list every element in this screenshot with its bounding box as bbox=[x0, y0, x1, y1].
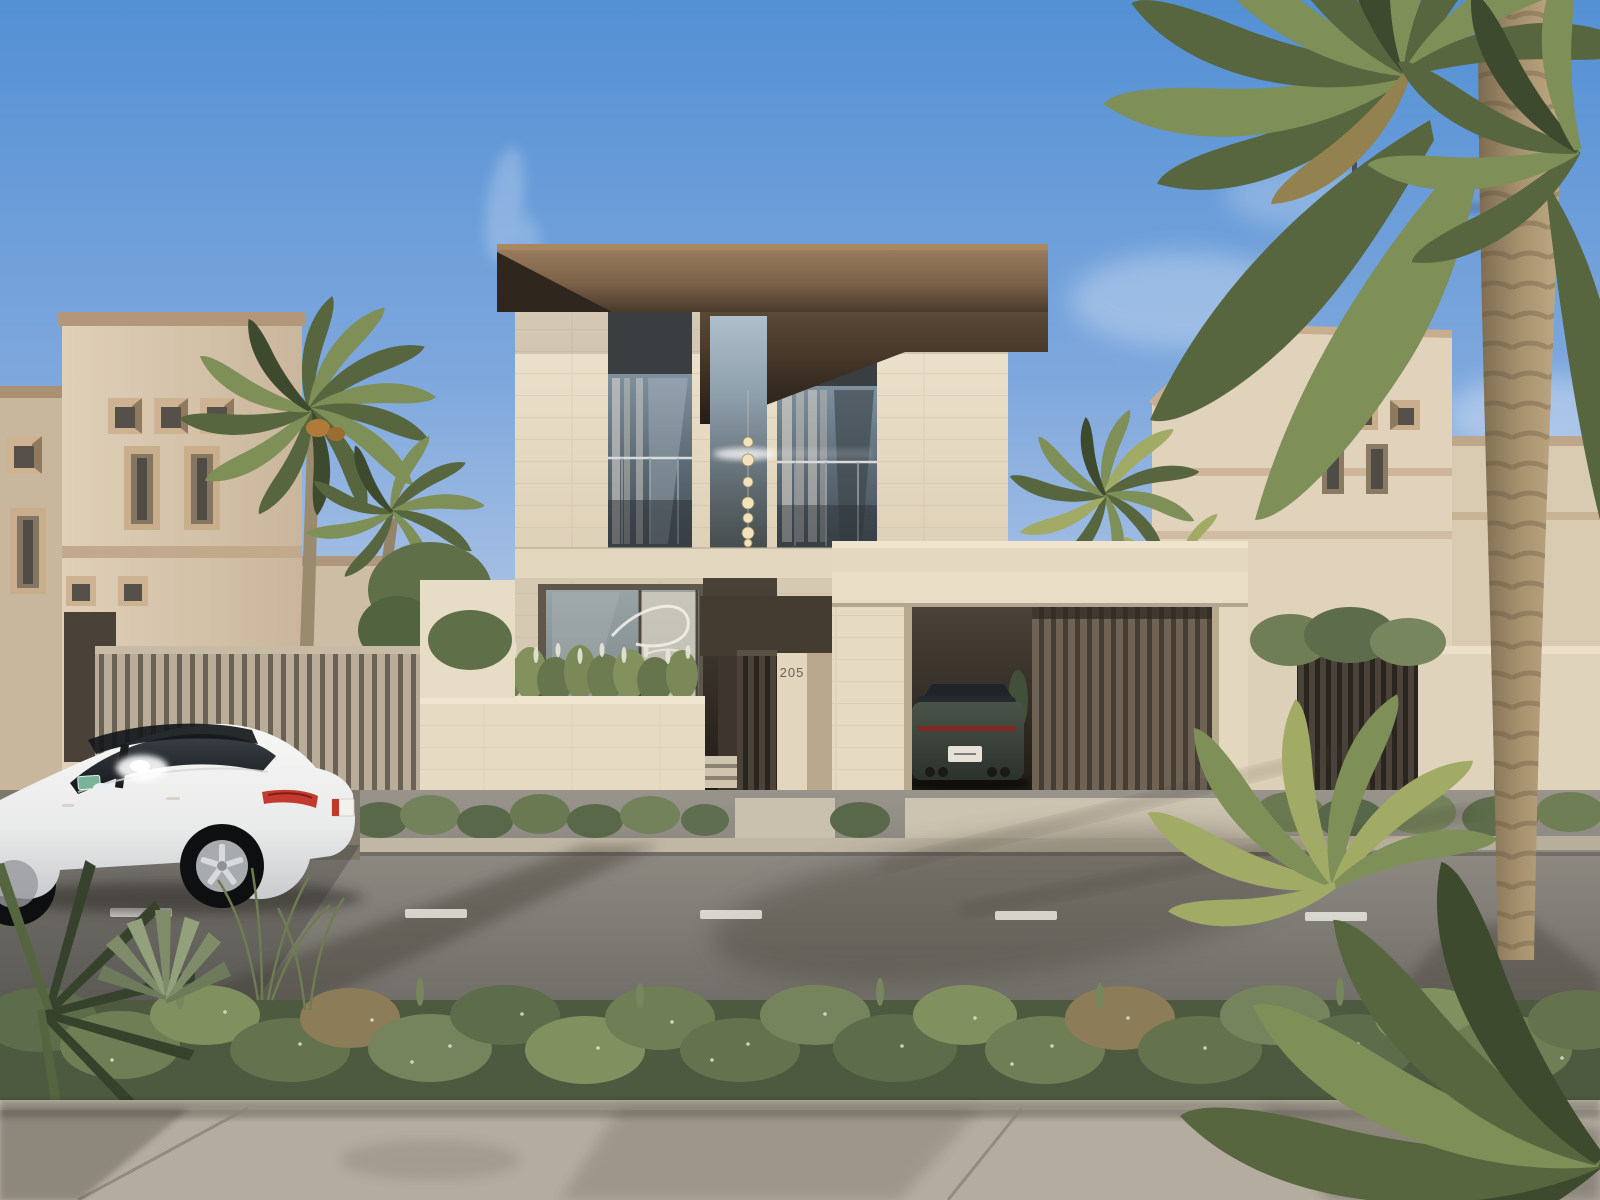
garage-door bbox=[1032, 607, 1212, 792]
architectural-render: 205 bbox=[0, 0, 1600, 1200]
suv-taillight bbox=[918, 726, 1016, 731]
parapet-coping bbox=[832, 541, 1248, 548]
parapet bbox=[832, 548, 1248, 572]
upper-window-right bbox=[777, 386, 877, 548]
suv bbox=[906, 684, 1030, 792]
gate-rail bbox=[737, 650, 777, 656]
date-cluster bbox=[306, 419, 330, 437]
pier-shadow-edge bbox=[904, 607, 912, 792]
left-fence-rail bbox=[95, 646, 420, 654]
door-handle bbox=[166, 797, 180, 800]
upper-window-left bbox=[608, 374, 692, 548]
entry-gate-slats bbox=[737, 656, 777, 792]
entry-porch-shadow bbox=[700, 596, 835, 656]
plate-red-band bbox=[332, 799, 339, 816]
car-shadow bbox=[7, 882, 363, 914]
carport-beam bbox=[832, 572, 1248, 607]
left-villa-ledge bbox=[62, 546, 302, 558]
entry-walk bbox=[735, 798, 835, 840]
side-yard-bush bbox=[428, 610, 512, 670]
left-villa-parapet-cap bbox=[0, 386, 62, 398]
window-header-left bbox=[608, 312, 692, 374]
gate-pillar bbox=[807, 653, 833, 792]
carport bbox=[832, 541, 1248, 792]
house-number: 205 bbox=[780, 665, 805, 680]
door-handle bbox=[62, 804, 74, 807]
sun-glint-core bbox=[130, 760, 150, 772]
left-villa-tower-cap bbox=[58, 312, 306, 326]
wheel-hub bbox=[217, 861, 227, 871]
canopy-top-edge bbox=[497, 244, 1048, 250]
date-cluster bbox=[327, 427, 345, 441]
side-mirror bbox=[93, 783, 109, 793]
